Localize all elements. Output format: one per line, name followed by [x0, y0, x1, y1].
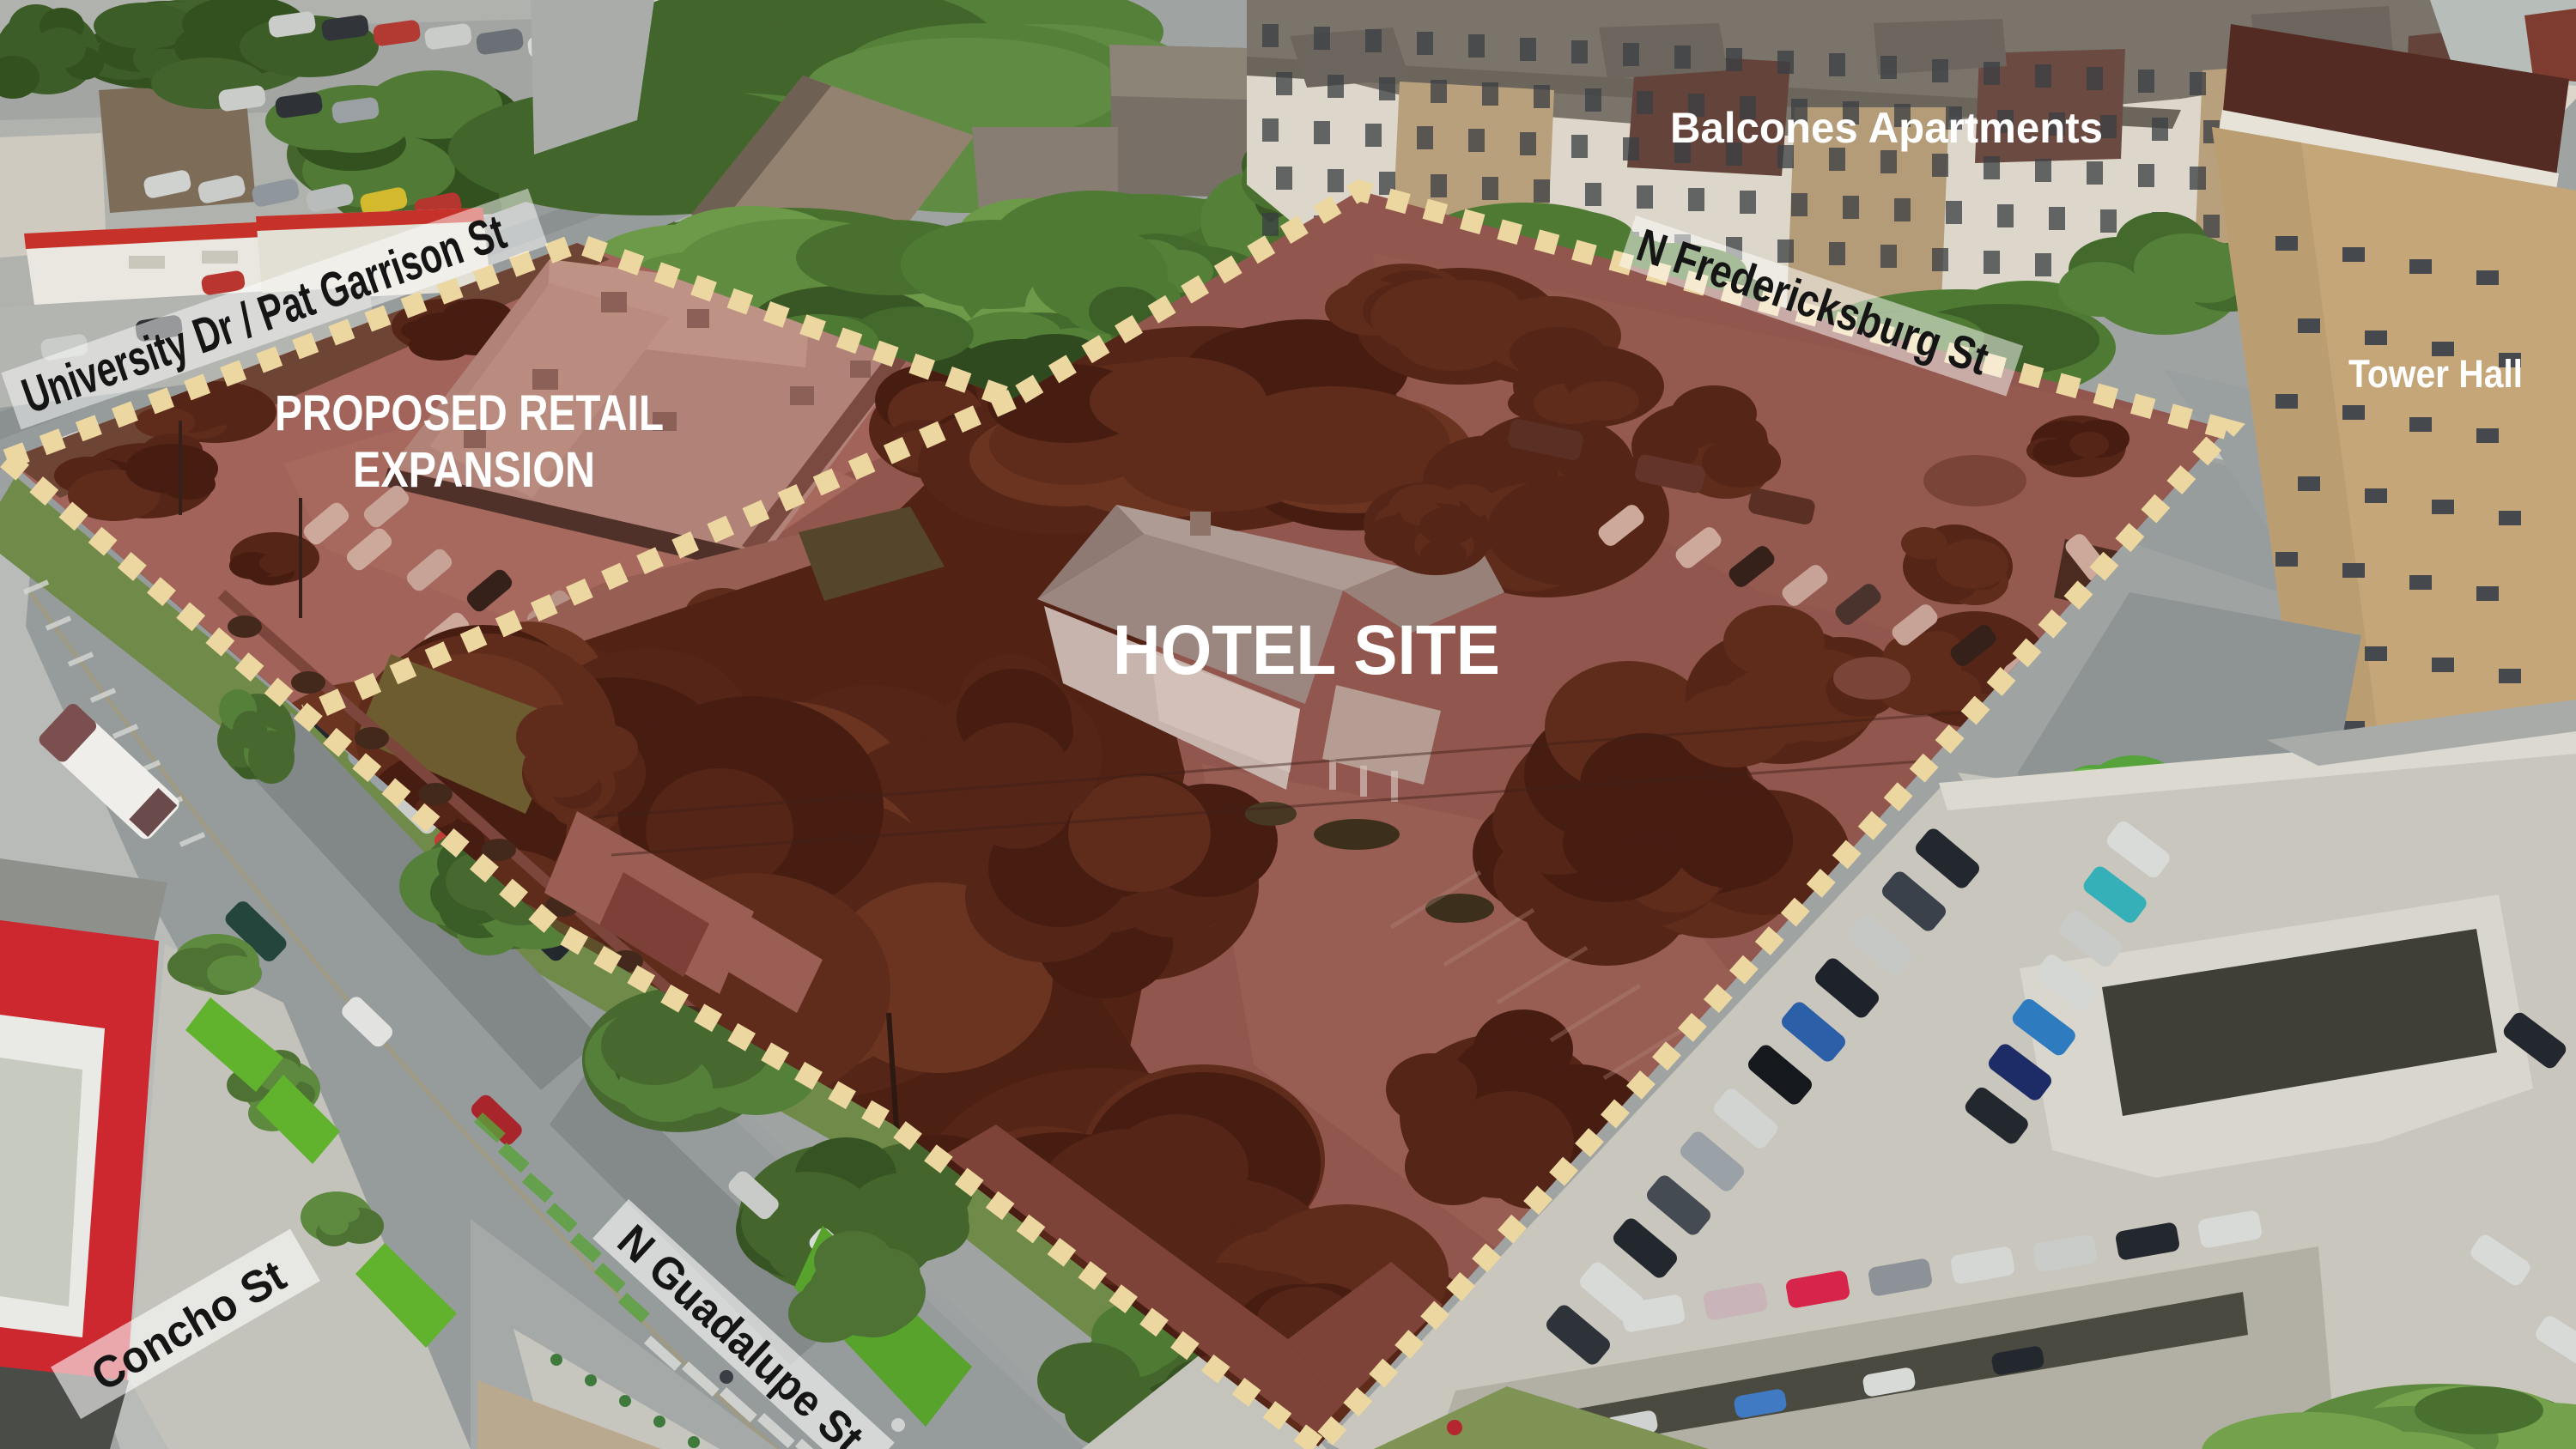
- svg-text:EXPANSION: EXPANSION: [353, 442, 595, 498]
- svg-text:Tower Hall: Tower Hall: [2348, 352, 2523, 396]
- svg-text:Balcones Apartments: Balcones Apartments: [1670, 104, 2103, 152]
- svg-text:HOTEL SITE: HOTEL SITE: [1113, 611, 1500, 689]
- svg-text:PROPOSED RETAIL: PROPOSED RETAIL: [275, 385, 664, 441]
